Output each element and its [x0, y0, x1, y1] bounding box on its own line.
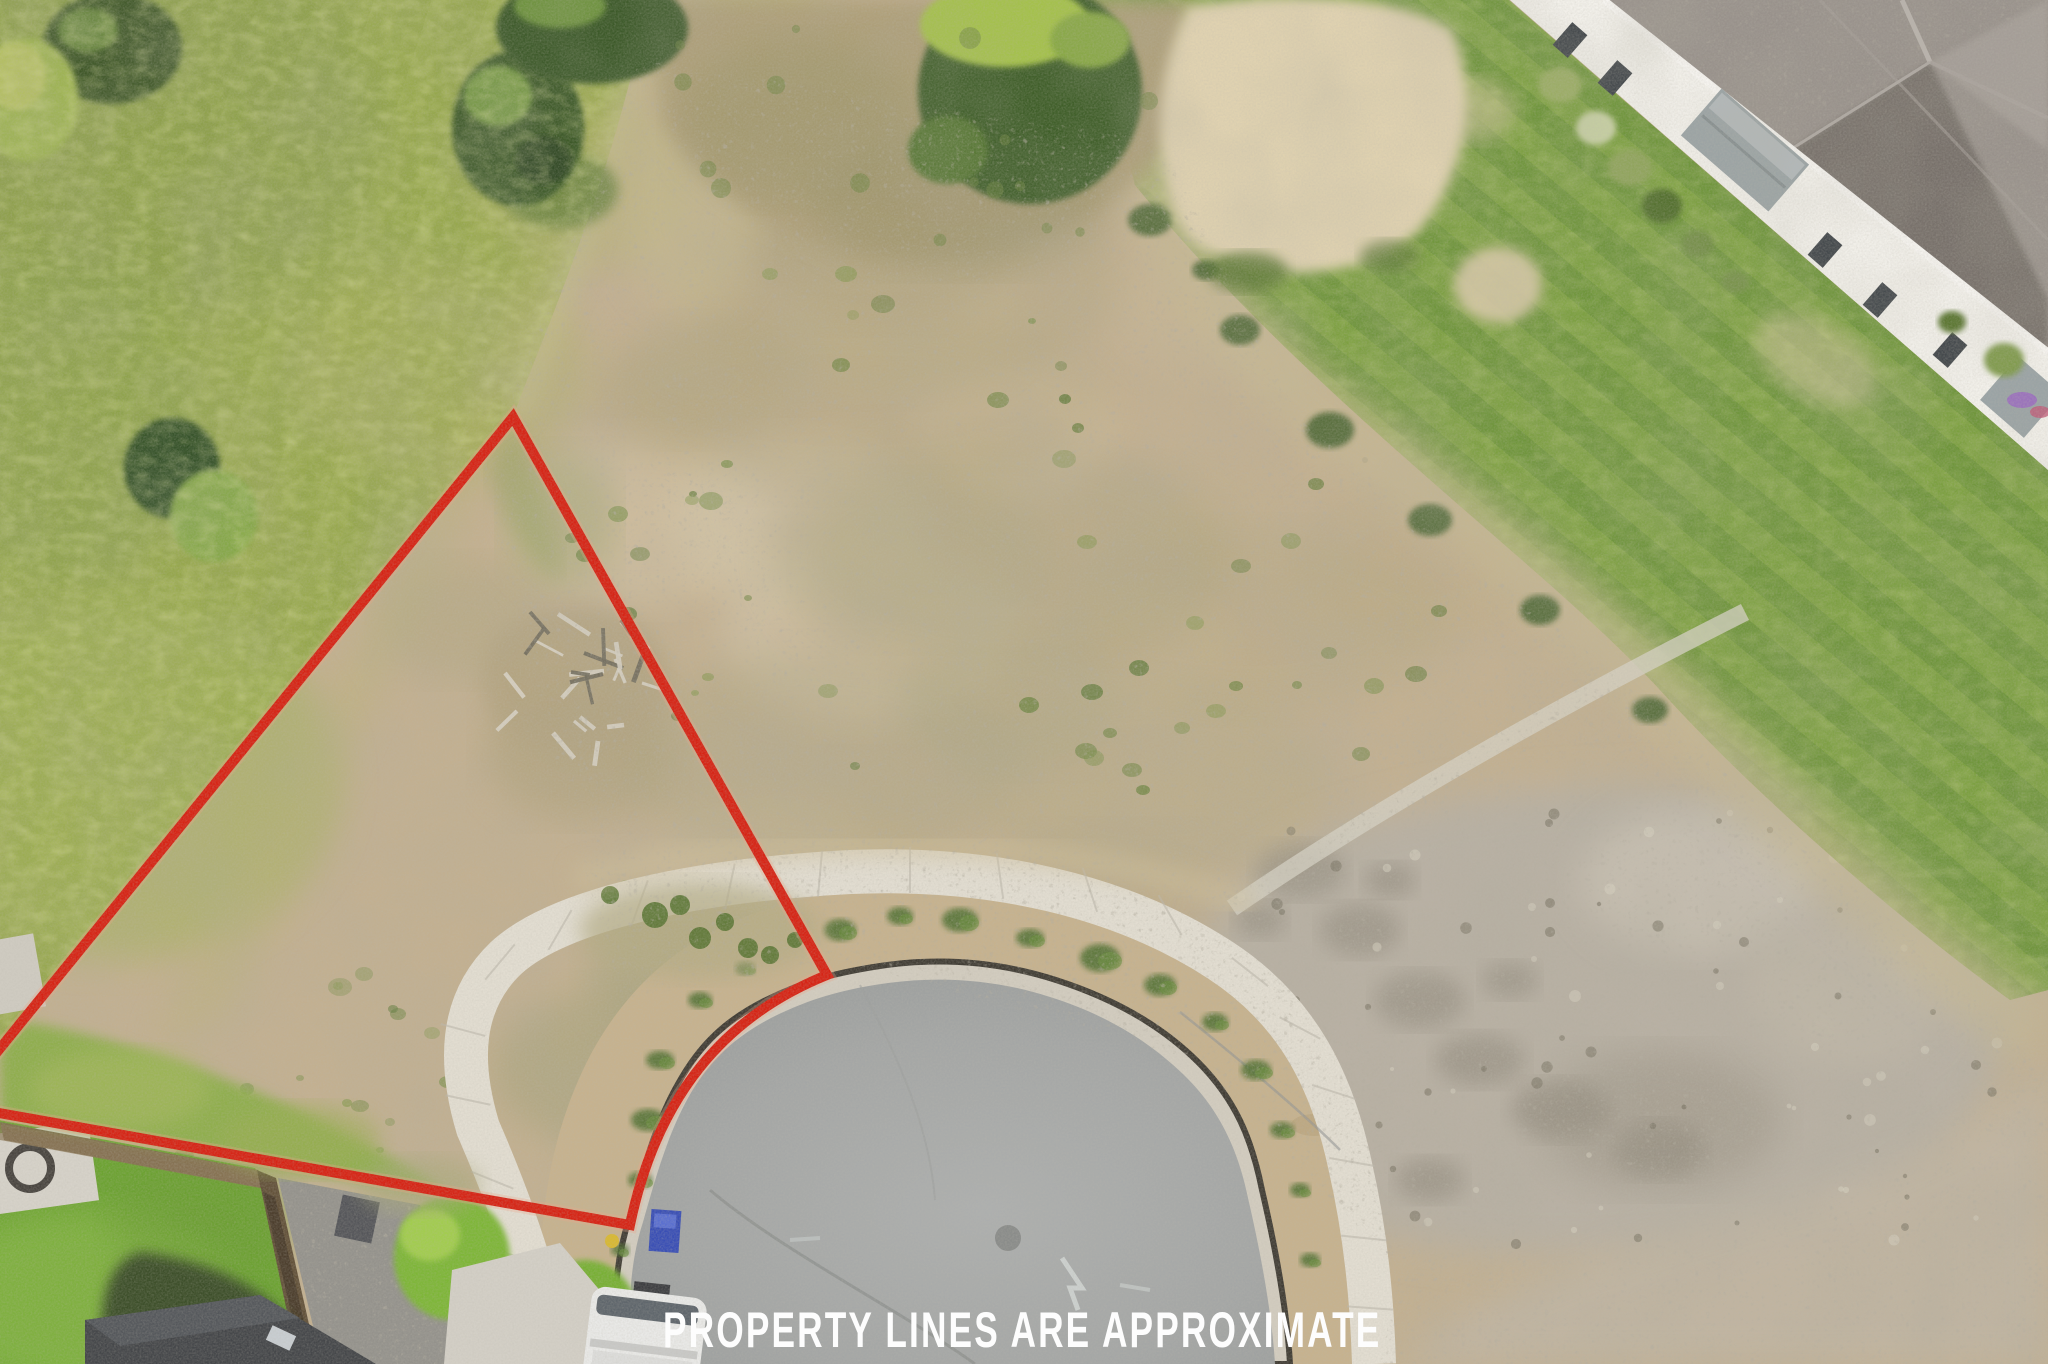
svg-text:PROPERTY LINES ARE APPROXIMATE: PROPERTY LINES ARE APPROXIMATE	[663, 1303, 1381, 1358]
